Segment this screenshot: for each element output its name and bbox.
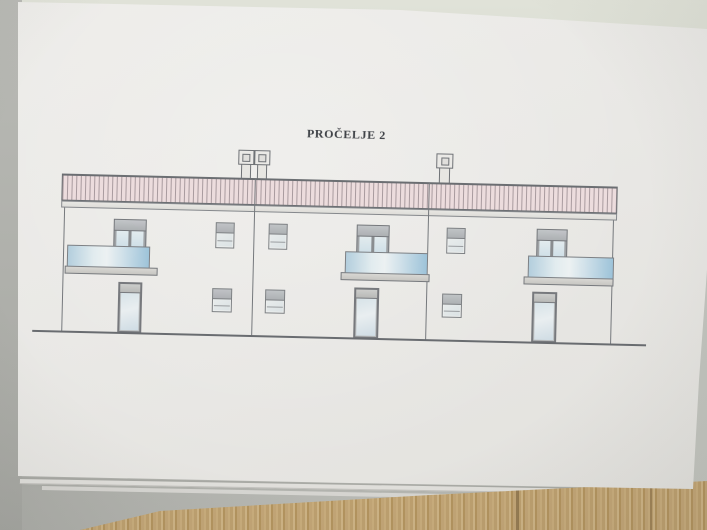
door-shutter-box — [356, 289, 377, 298]
upper-window — [446, 228, 466, 254]
chimney-flue — [242, 153, 250, 161]
chimney-stack — [257, 165, 267, 178]
chimney-cap — [436, 153, 453, 168]
window-glass — [214, 299, 230, 310]
door-shutter-box — [358, 226, 389, 238]
window-glass — [448, 239, 463, 252]
ground-window — [265, 289, 286, 313]
balcony-door — [356, 224, 390, 254]
balcony-door — [536, 229, 568, 259]
window-glass — [270, 234, 285, 247]
door-glass — [120, 293, 139, 330]
door-shutter-box — [115, 220, 146, 232]
door-glass-pane — [374, 237, 386, 253]
window-shutter-box — [213, 289, 231, 299]
door-glass-pane — [359, 237, 371, 253]
balcony-door — [113, 219, 147, 249]
window-shutter-box — [443, 295, 461, 305]
window-glass — [444, 305, 460, 316]
upper-window — [215, 222, 235, 248]
balcony-glass-railing — [345, 251, 428, 275]
paper-sheet: PROČELJE 2 — [0, 0, 707, 530]
door-shutter-box — [534, 294, 555, 303]
door-shutter-box — [537, 230, 566, 242]
balcony-glass-railing — [528, 256, 614, 280]
window-shutter-box — [270, 224, 287, 234]
ground-window — [212, 288, 233, 312]
chimney-flue — [258, 154, 266, 162]
drawing-title: PROČELJE 2 — [307, 126, 447, 144]
window-shutter-box — [217, 223, 234, 233]
chimney-stack — [241, 165, 251, 178]
chimney-cap — [254, 150, 270, 165]
wood-plank-groove — [516, 484, 519, 530]
ground-door — [117, 282, 142, 334]
ground-door — [353, 287, 379, 339]
window-glass — [217, 233, 232, 246]
door-glass-pane — [116, 231, 128, 247]
chimney-flue — [441, 157, 449, 165]
photo-scene: PROČELJE 2 — [0, 0, 707, 530]
door-glass — [356, 299, 376, 336]
upper-window — [268, 223, 288, 249]
door-glass-pane — [553, 241, 564, 257]
chimney-stack — [439, 168, 450, 182]
window-shutter-box — [447, 229, 464, 239]
door-glass-pane — [539, 241, 550, 257]
window-glass — [267, 300, 283, 311]
balcony-glass-railing — [67, 245, 150, 269]
wood-grain-line — [650, 482, 652, 530]
ground-window — [442, 294, 463, 318]
door-glass-pane — [131, 231, 143, 247]
window-shutter-box — [266, 290, 284, 300]
ground-door — [531, 292, 557, 344]
door-glass — [534, 303, 554, 340]
door-shutter-box — [120, 284, 140, 293]
chimney-cap — [238, 150, 254, 165]
facade-elevation-drawing: PROČELJE 2 — [36, 170, 652, 359]
